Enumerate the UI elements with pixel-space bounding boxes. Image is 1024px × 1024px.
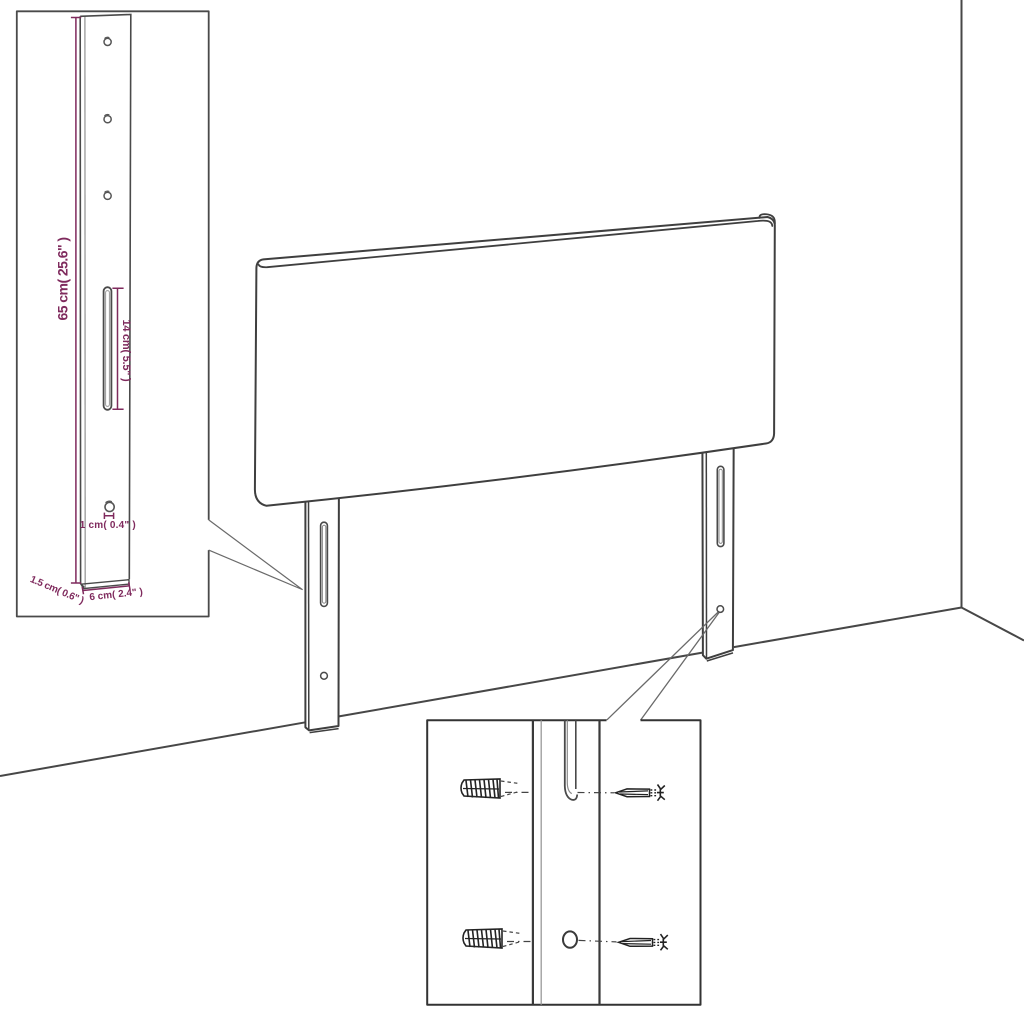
svg-text:14 cm( 5.5" ): 14 cm( 5.5" ) <box>120 320 132 382</box>
svg-text:1 cm( 0.4" ): 1 cm( 0.4" ) <box>80 520 136 531</box>
svg-text:65 cm( 25.6" ): 65 cm( 25.6" ) <box>54 238 70 321</box>
